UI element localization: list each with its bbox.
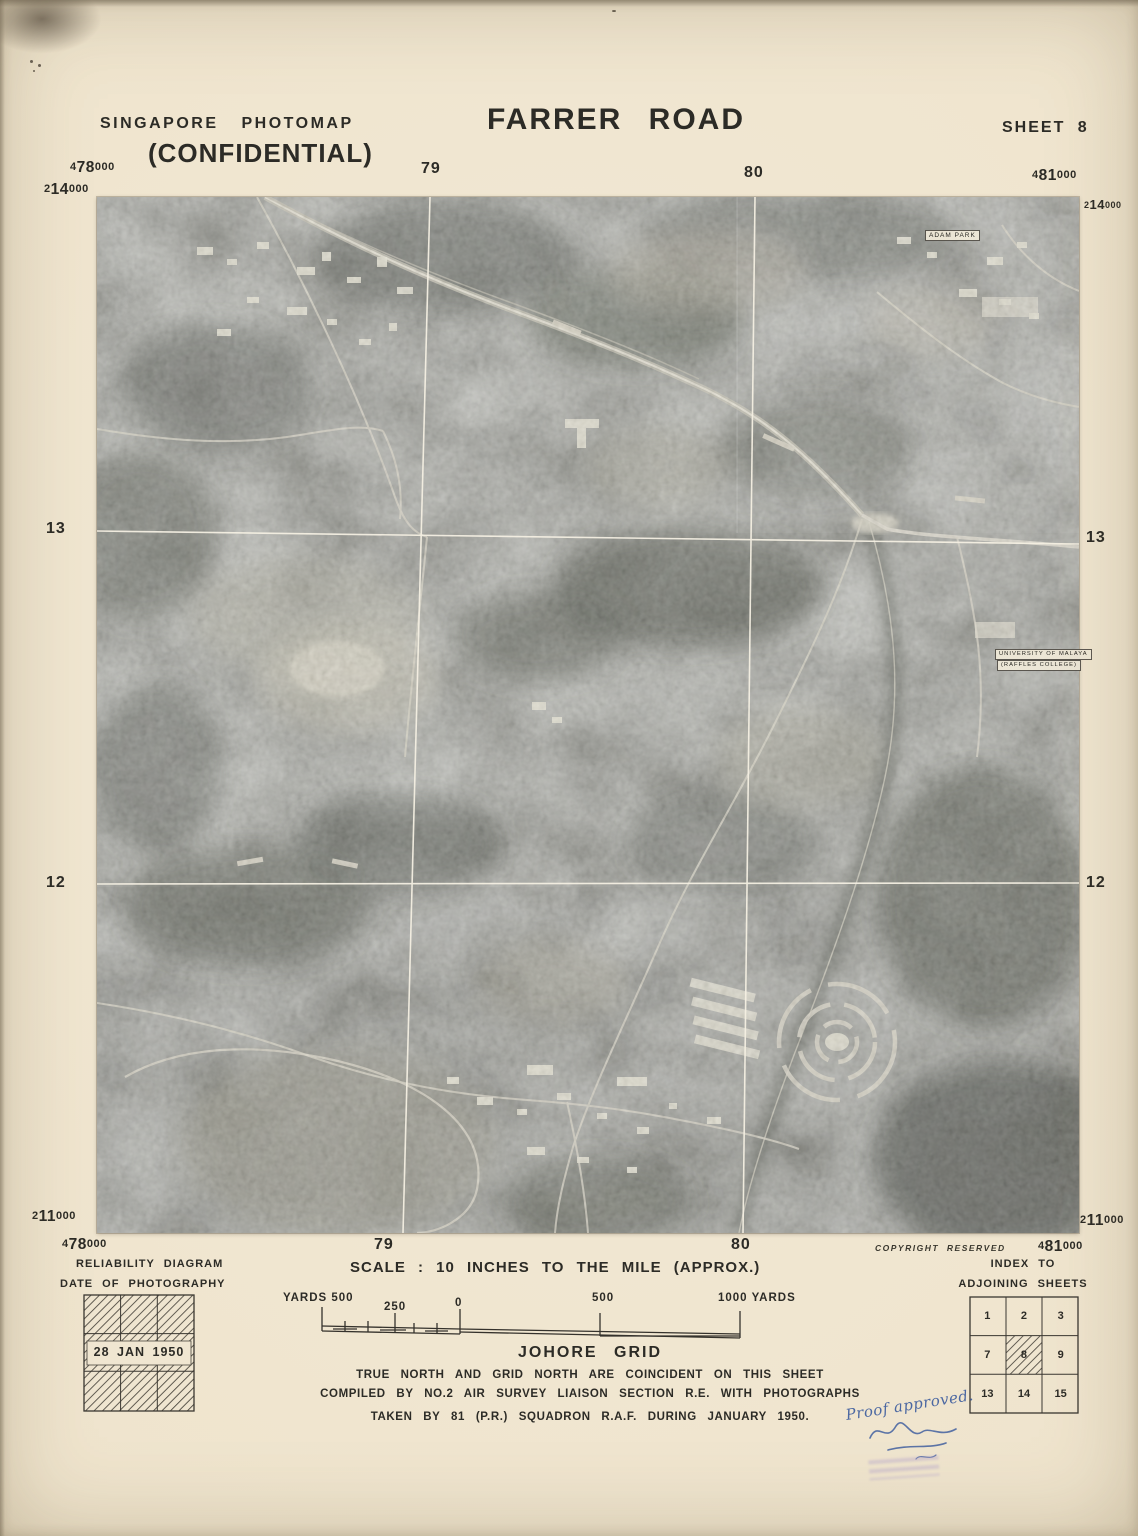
grid-northing-13-right: 13 [1086, 529, 1106, 547]
grid-northing-bottomleft: 211000 [32, 1208, 76, 1226]
copyright-notice: COPYRIGHT RESERVED [875, 1243, 1006, 1253]
taken-note: TAKEN BY 81 (P.R.) SQUADRON R.A.F. DURIN… [230, 1411, 950, 1423]
map-label-university: UNIVERSITY OF MALAYA [995, 649, 1092, 660]
index-sheet-15: 15 [1042, 1375, 1079, 1414]
grid-easting-79-bottom: 79 [374, 1236, 394, 1254]
photomap-sheet: SINGAPORE PHOTOMAP (CONFIDENTIAL) FARRER… [0, 0, 1138, 1536]
grid-northing-12-right: 12 [1086, 874, 1106, 892]
grid-northing-topright: 214000 [1084, 196, 1122, 214]
index-sheet-9: 9 [1042, 1335, 1079, 1374]
grid-easting-topleft: 478000 [70, 159, 115, 177]
reliability-diagram-title: RELIABILITY DIAGRAM [76, 1258, 223, 1270]
grid-northing-12-left: 12 [46, 874, 66, 892]
grid-easting-bottomright: 481000 [1038, 1238, 1083, 1256]
index-sheet-numbers: 1 2 3 7 8 9 13 14 15 [969, 1296, 1079, 1414]
map-label-adam-park: ADAM PARK [925, 230, 980, 241]
index-sheet-13: 13 [969, 1375, 1006, 1414]
date-of-photography-title: DATE OF PHOTOGRAPHY [60, 1278, 226, 1290]
scan-corner-shadow [0, 0, 102, 54]
handwritten-signature [858, 1412, 988, 1462]
scan-edge-top [0, 0, 1138, 7]
scale-statement: SCALE : 10 INCHES TO THE MILE (APPROX.) [350, 1259, 760, 1276]
aerial-photo-render [97, 197, 1079, 1233]
index-sheet-7: 7 [969, 1335, 1006, 1374]
index-sheet-8-current: 8 [1006, 1335, 1043, 1374]
grid-easting-topright: 481000 [1032, 167, 1077, 185]
grid-easting-bottomleft: 478000 [62, 1236, 107, 1254]
grid-northing-13-left: 13 [46, 520, 66, 538]
index-sheet-14: 14 [1006, 1375, 1043, 1414]
index-title-line1: INDEX TO [968, 1258, 1078, 1270]
index-title-line2: ADJOINING SHEETS [958, 1278, 1088, 1290]
grid-name: JOHORE GRID [230, 1344, 950, 1362]
photography-date: 28 JAN 1950 [83, 1345, 195, 1359]
sheet-number: SHEET 8 [1002, 119, 1089, 137]
series-title: SINGAPORE PHOTOMAP [100, 115, 354, 133]
index-sheet-3: 3 [1042, 1296, 1079, 1335]
compiled-note: COMPILED BY NO.2 AIR SURVEY LIAISON SECT… [230, 1388, 950, 1400]
index-sheet-1: 1 [969, 1296, 1006, 1335]
map-label-raffles-college: (RAFFLES COLLEGE) [997, 660, 1081, 671]
grid-easting-80-bottom: 80 [731, 1236, 751, 1254]
faint-stamp [868, 1456, 939, 1481]
index-sheet-2: 2 [1006, 1296, 1043, 1335]
page-title: FARRER ROAD [487, 103, 745, 137]
scale-bar [280, 1285, 880, 1345]
scan-edge-left [0, 0, 5, 1536]
grid-northing-bottomright: 211000 [1080, 1212, 1124, 1230]
confidential-marking: (CONFIDENTIAL) [148, 138, 373, 169]
grid-easting-79-top: 79 [421, 160, 441, 178]
aerial-photo: ADAM PARK UNIVERSITY OF MALAYA (RAFFLES … [97, 197, 1079, 1233]
north-note: TRUE NORTH AND GRID NORTH ARE COINCIDENT… [230, 1369, 950, 1381]
grid-northing-topleft: 214000 [44, 181, 89, 199]
grid-easting-80-top: 80 [744, 164, 764, 182]
